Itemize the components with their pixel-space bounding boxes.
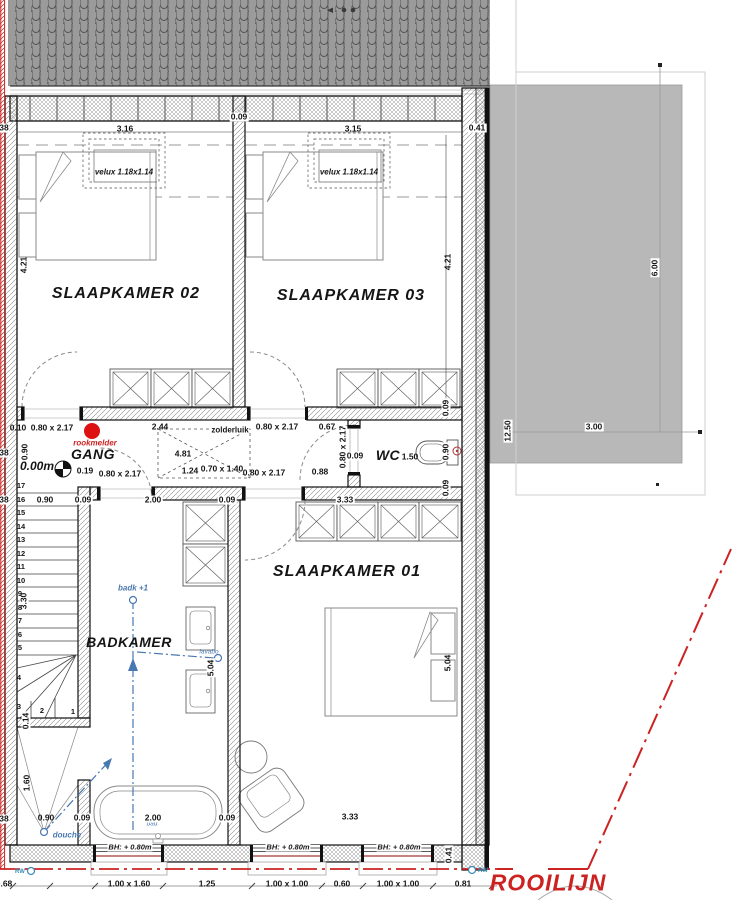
dim-label: 0.88 [312, 468, 329, 477]
dim-label: 38 [0, 124, 10, 133]
annotation-layer: SLAAPKAMER 02SLAAPKAMER 03SLAAPKAMER 01G… [0, 0, 743, 900]
attic-hatch-label: zolderluik [210, 426, 249, 435]
dim-label: 0.90 [442, 443, 451, 462]
dim-label: 38 [0, 449, 10, 458]
dim-label: 0.14 [22, 712, 31, 731]
rw-right-note: RW [478, 868, 488, 874]
window-head-note: BH: + 0.80m [265, 843, 310, 852]
stair-step-number: 8 [18, 604, 22, 612]
dim-label: 12.50 [504, 419, 513, 442]
dim-label: 2.00 [144, 814, 163, 823]
rooilijn-label: ROOILIJN [490, 870, 607, 897]
dim-label: 0.09 [442, 399, 451, 418]
room-label-sk01: SLAAPKAMER 01 [273, 563, 421, 581]
dim-label: 38 [0, 496, 10, 505]
dim-label: 0.09 [73, 814, 92, 823]
dim-label: 0.09 [442, 479, 451, 498]
dim-label: 5.04 [207, 659, 216, 678]
dim-label: 0.81 [455, 880, 472, 889]
stair-step-number: 14 [17, 523, 25, 531]
window-head-note: BH: + 0.80m [107, 843, 152, 852]
dim-label: 1.24 [182, 467, 199, 476]
dim-label: 0.09 [74, 496, 93, 505]
dim-label: 0.09 [218, 496, 237, 505]
douche-note: douche [53, 831, 81, 840]
dim-label: 3.33 [336, 496, 355, 505]
level-label: 0.00m [20, 459, 54, 473]
dim-label: 0.70 x 1.40 [201, 465, 244, 474]
stair-step-number: 17 [17, 482, 25, 490]
stair-step-number: 1 [71, 708, 75, 716]
stair-step-number: 9 [18, 590, 22, 598]
dim-label: 1.60 [23, 775, 32, 792]
stair-step-number: 10 [17, 577, 25, 585]
room-label-sk03: SLAAPKAMER 03 [277, 287, 425, 305]
dim-label: 0.80 x 2.17 [339, 426, 348, 469]
dim-label: 0.41 [445, 846, 454, 865]
dim-label: 1.00 x 1.00 [266, 880, 309, 889]
stair-step-number: 11 [17, 563, 25, 571]
dim-label: 3.16 [117, 125, 134, 134]
dim-label: 38 [0, 815, 10, 824]
dim-label: 1.00 x 1.00 [377, 880, 420, 889]
lavabo-note: lavabo [199, 649, 218, 656]
stair-step-number: 15 [17, 509, 25, 517]
dim-label: 1.25 [199, 880, 216, 889]
room-label-gang: GANG [71, 446, 115, 462]
dim-label: 0.67 [319, 423, 336, 432]
dim-label: 3.15 [345, 125, 362, 134]
stair-step-number: 13 [17, 536, 25, 544]
dim-label: 0.09 [230, 113, 249, 122]
dim-label: 0.41 [468, 124, 487, 133]
room-label-badkamer: BADKAMER [86, 634, 172, 650]
dim-label: 0.90 [21, 444, 30, 461]
stair-step-number: 12 [17, 550, 25, 558]
dim-label: 2.00 [144, 496, 163, 505]
stair-step-number: 5 [18, 644, 22, 652]
dim-label: 0.60 [334, 880, 351, 889]
dim-label: 4.21 [444, 254, 453, 271]
dim-label: 4.81 [175, 450, 192, 459]
smoke-detector-label: rookmelder [73, 439, 117, 448]
floor-plan-page: SLAAPKAMER 02SLAAPKAMER 03SLAAPKAMER 01G… [0, 0, 743, 900]
dim-label: 0.09 [218, 814, 237, 823]
stair-step-number: 3 [17, 703, 21, 711]
dim-label: 3.00 [585, 423, 604, 432]
window-head-note: BH: + 0.80m [376, 843, 421, 852]
dim-label: 3.33 [342, 813, 359, 822]
dim-label: 0.80 x 2.17 [99, 470, 142, 479]
dim-label: 6.00 [651, 259, 660, 278]
dim-label: 0.80 x 2.17 [31, 424, 74, 433]
stair-step-number: 2 [40, 707, 44, 715]
dim-label: 1.00 x 1.60 [108, 880, 151, 889]
dim-label: 2.44 [152, 423, 169, 432]
dim-label: 0.68 [0, 880, 12, 889]
dim-label: 0.10 [10, 424, 27, 433]
room-label-wc: WC [376, 447, 400, 463]
dim-label: 0.90 [38, 814, 55, 823]
badk-note: badk +1 [118, 584, 148, 593]
dim-label: 5.04 [444, 655, 453, 672]
dim-label: 0.80 x 2.17 [243, 469, 286, 478]
rw-left-note: RW [15, 869, 25, 875]
velux-label-sk02: velux 1.18x1.14 [95, 168, 153, 177]
velux-label-sk03: velux 1.18x1.14 [320, 168, 378, 177]
stair-step-number: 4 [17, 674, 21, 682]
wc-area-label: 1.50 [402, 453, 419, 462]
stair-step-number: 7 [18, 617, 22, 625]
dim-label: 0.19 [77, 467, 94, 476]
dim-label: 4.21 [20, 257, 29, 274]
dim-label: 0.90 [36, 496, 55, 505]
dim-label: 0.09 [346, 452, 365, 461]
dim-label: 0.80 x 2.17 [256, 423, 299, 432]
stair-step-number: 16 [17, 496, 25, 504]
room-label-sk02: SLAAPKAMER 02 [52, 285, 200, 303]
stair-step-number: 6 [18, 631, 22, 639]
